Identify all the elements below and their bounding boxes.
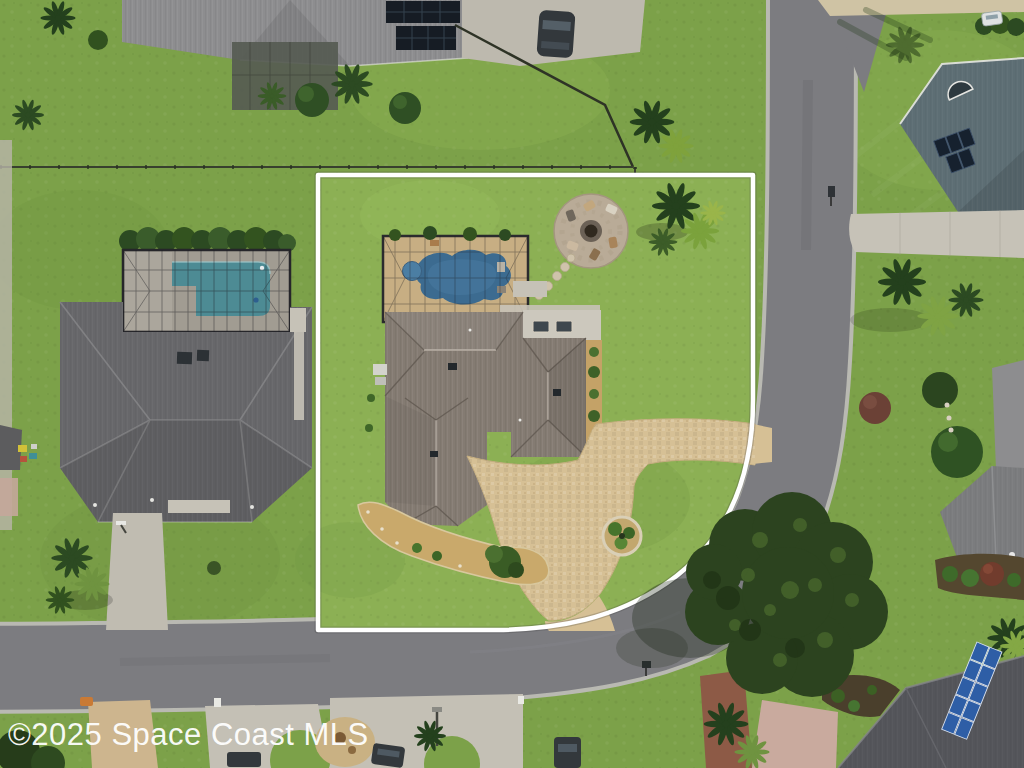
purple-leaf-shrub [859, 392, 891, 424]
stepping-stone [947, 416, 952, 421]
roof-vent [150, 498, 154, 502]
border-rock [395, 541, 399, 545]
west-pool-enclosure [123, 250, 290, 332]
roof-vent [553, 389, 561, 396]
east-roof-edge [992, 360, 1024, 470]
small-tree [207, 561, 221, 575]
concrete-pad [290, 308, 306, 332]
shrub-highlight [863, 395, 877, 409]
roof-vent [93, 503, 97, 507]
driveway-apron-ne [753, 424, 772, 464]
shrub [88, 30, 108, 50]
lounger [556, 321, 572, 332]
round-shrub [295, 83, 329, 117]
pink-pavement [752, 700, 838, 768]
tree-highlight [938, 432, 958, 452]
tree-shadow [616, 628, 688, 668]
pool-toy [260, 266, 264, 270]
tree-shade [508, 562, 524, 578]
roof-dot [469, 329, 472, 332]
border-rock [380, 527, 384, 531]
watermark-text: ©2025 Space Coast MLS [8, 717, 369, 752]
landscape-island [603, 517, 641, 555]
top-driveway-car [536, 10, 575, 58]
sidewalk-strip [0, 140, 12, 530]
tree-highlight [485, 545, 503, 563]
west-driveway [106, 513, 168, 630]
ne-driveway [849, 210, 1024, 258]
equipment-pad [513, 281, 547, 297]
roof-vent [250, 505, 254, 509]
round-shrub [389, 92, 421, 124]
fire-pit [585, 225, 598, 238]
skylight [177, 352, 192, 365]
red-leaf-bush [980, 562, 1004, 586]
shrub-highlight [393, 95, 407, 109]
parked-car [554, 737, 581, 768]
stepping-stone [949, 428, 954, 433]
basketball-backboard [432, 707, 442, 712]
deck-furniture [430, 240, 439, 246]
palm-shadow [850, 308, 930, 332]
parked-car [227, 752, 261, 767]
parked-car [371, 743, 406, 768]
skylight [197, 350, 209, 361]
green-tree [931, 426, 983, 478]
pool-shallow [428, 259, 496, 295]
side-walkway [294, 332, 304, 420]
aerial-photo: ©2025 Space Coast MLS [0, 0, 1024, 768]
white-mailbox [518, 696, 524, 704]
pool-toy [253, 297, 258, 302]
front-walkway [168, 500, 230, 513]
border-rock [458, 564, 462, 568]
tar-streak [806, 80, 808, 250]
roof-vent [448, 363, 457, 370]
shrub-highlight [298, 86, 314, 102]
west-neighbor-house [60, 302, 312, 522]
lounger [533, 321, 549, 332]
lanai [523, 310, 601, 340]
fire-pit-patio [554, 194, 628, 268]
roof-vent [430, 451, 438, 457]
white-mailbox [214, 698, 221, 707]
aerial-photo-canvas: ©2025 Space Coast MLS [0, 0, 1024, 768]
border-rock [366, 510, 370, 514]
stepping-stone [945, 403, 950, 408]
shrub [412, 543, 422, 553]
roof-dot [519, 419, 522, 422]
tar-streak [120, 658, 330, 662]
shrub [432, 551, 442, 561]
deck-furniture [497, 286, 506, 293]
deck-furniture [497, 262, 505, 272]
green-tree [922, 372, 958, 408]
orange-object [80, 697, 93, 706]
white-vehicle [981, 11, 1003, 27]
